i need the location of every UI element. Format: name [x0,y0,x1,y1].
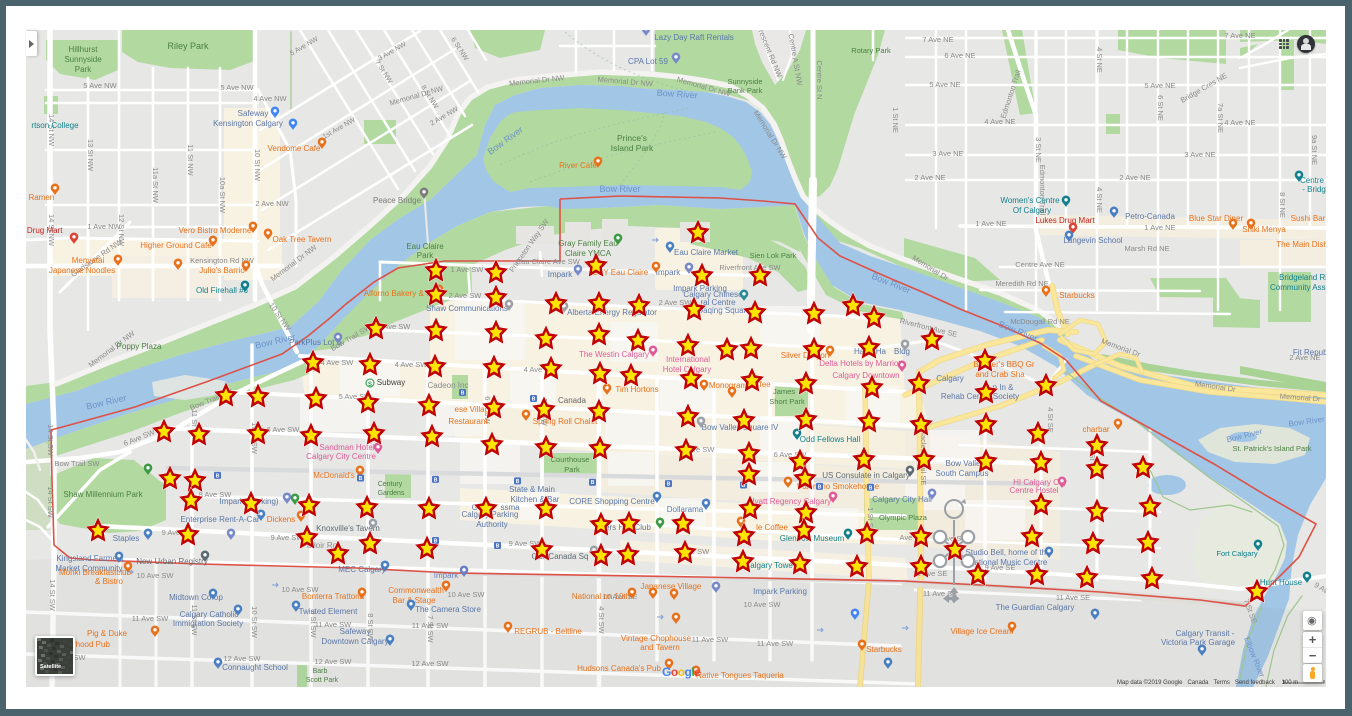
svg-text:3 Ave NE: 3 Ave NE [1184,150,1215,159]
svg-text:Immigration Society: Immigration Society [173,619,243,628]
svg-text:James: James [773,387,795,396]
svg-text:Bridgeland Riv: Bridgeland Riv [1279,273,1326,282]
svg-text:Connaught School: Connaught School [222,663,288,672]
svg-text:Olympic Plaza: Olympic Plaza [879,513,928,522]
svg-text:Peace Bridge: Peace Bridge [373,196,422,205]
svg-text:Gardens: Gardens [378,490,405,497]
svg-text:11 Ave SW: 11 Ave SW [692,635,729,644]
svg-text:4 Ave NE: 4 Ave NE [984,117,1015,126]
svg-text:Pig & Duke: Pig & Duke [87,629,128,638]
svg-text:Japanese Noodles: Japanese Noodles [49,266,115,275]
svg-text:Subway: Subway [377,378,405,387]
svg-text:Daqing Square: Daqing Square [697,306,751,315]
svg-text:10 Ave SW: 10 Ave SW [137,571,175,580]
svg-text:13 St NW: 13 St NW [86,139,95,172]
svg-text:B: B [434,477,438,483]
svg-text:REGRUB - Beltline: REGRUB - Beltline [514,627,582,636]
svg-text:1 St NE: 1 St NE [891,107,900,133]
svg-text:Calgary City Centre: Calgary City Centre [306,452,376,461]
svg-text:7 Ave NE: 7 Ave NE [922,35,953,44]
svg-text:Meredith Rd NE: Meredith Rd NE [995,279,1048,288]
svg-text:12 Ave SW: 12 Ave SW [412,659,450,668]
svg-text:Women's Centre: Women's Centre [1000,196,1060,205]
svg-text:4 Ave NW: 4 Ave NW [253,94,287,103]
svg-text:4 St SW: 4 St SW [597,606,606,634]
svg-text:5 Ave NW: 5 Ave NW [220,83,254,92]
svg-text:Vintage Chophouse: Vintage Chophouse [621,634,692,643]
svg-text:Rotary Park: Rotary Park [851,46,891,55]
svg-text:Park: Park [564,465,580,474]
svg-text:10 St SW: 10 St SW [250,606,259,639]
svg-text:Downtown Calgary: Downtown Calgary [321,637,388,646]
svg-text:Kensington Calgary: Kensington Calgary [213,119,283,128]
svg-text:Spring Roll Chalet: Spring Roll Chalet [533,417,598,426]
svg-text:Glenbow Museum: Glenbow Museum [780,534,845,543]
svg-text:Village Ice Cream: Village Ice Cream [951,627,1014,636]
svg-text:B: B [359,476,363,482]
svg-text:charbar: charbar [1082,425,1109,434]
svg-text:Calgary Downtown: Calgary Downtown [832,371,899,380]
svg-text:Marsh Rd NE: Marsh Rd NE [1124,244,1169,253]
svg-text:Short Park: Short Park [769,397,805,406]
svg-text:Odd Fellows Hall: Odd Fellows Hall [800,435,861,444]
svg-text:2 Ave NW: 2 Ave NW [255,199,289,208]
svg-text:Barb: Barb [313,668,328,675]
svg-text:Of Calgary: Of Calgary [1013,206,1051,215]
svg-text:CPA Lot 59: CPA Lot 59 [628,57,668,66]
svg-text:Impark: Impark [434,571,459,580]
svg-text:Vero Bistro Moderne: Vero Bistro Moderne [179,226,252,235]
svg-text:St. Patrick's Island Park: St. Patrick's Island Park [1233,444,1312,453]
svg-text:McDonald's: McDonald's [313,471,355,480]
svg-text:B: B [461,391,465,397]
svg-text:12 Ave SW: 12 Ave SW [315,657,353,666]
svg-text:ers Drug Mart: ers Drug Mart [26,226,63,235]
svg-text:The Guardian Calgary: The Guardian Calgary [996,603,1075,612]
svg-text:State & Main: State & Main [509,485,555,494]
svg-text:4 Ave SW: 4 Ave SW [321,358,355,367]
svg-text:Bank Park: Bank Park [728,86,763,95]
svg-text:11a St NW: 11a St NW [151,167,160,204]
svg-text:B: B [496,544,500,550]
svg-text:National on 10th: National on 10th [572,592,630,601]
svg-text:2 Ave NE: 2 Ave NE [914,173,945,182]
svg-text:8 St NE: 8 St NE [1278,192,1287,218]
svg-text:Safeway: Safeway [238,109,269,118]
svg-text:4 Ave SW: 4 Ave SW [395,360,429,369]
svg-text:10 Ave SW: 10 Ave SW [448,590,486,599]
svg-text:Riverfront Ave SW: Riverfront Ave SW [719,263,781,272]
svg-text:Hotel Calgary: Hotel Calgary [663,365,711,374]
svg-text:e Ramen: e Ramen [26,193,54,202]
svg-text:River Cafe: River Cafe [559,161,597,170]
svg-text:B: B [667,482,671,488]
svg-text:Canada: Canada [558,396,587,405]
svg-text:Impark: Impark [548,270,573,279]
svg-text:7a St NE: 7a St NE [1216,103,1225,133]
svg-text:Park: Park [417,251,434,260]
svg-text:Authority: Authority [476,520,508,529]
svg-text:Island Park: Island Park [611,143,654,153]
svg-text:S: S [368,382,372,388]
svg-text:Shaw Communications: Shaw Communications [426,304,508,313]
svg-text:10 St NW: 10 St NW [253,149,262,182]
svg-text:Julio's Barrio: Julio's Barrio [199,266,245,275]
svg-text:11 Ave SE: 11 Ave SE [1056,593,1090,602]
svg-text:McDougall Rd NE: McDougall Rd NE [1010,317,1070,326]
svg-text:Prince's: Prince's [617,133,647,143]
svg-text:B: B [869,485,873,491]
svg-text:Impark Parking: Impark Parking [753,587,807,596]
svg-text:7 Ave NE: 7 Ave NE [1224,31,1255,40]
svg-text:- Bridg: - Bridg [1302,185,1326,194]
svg-text:Oak Tree Tavern: Oak Tree Tavern [273,235,332,244]
svg-text:B: B [532,397,536,403]
svg-text:Victoria Park Garage: Victoria Park Garage [1161,638,1236,647]
svg-text:Lukes Drug Mart: Lukes Drug Mart [1035,216,1095,225]
svg-text:Sushi Bar: Sushi Bar [1291,214,1326,223]
svg-text:Delta Hotels by Marriott: Delta Hotels by Marriott [819,359,903,368]
svg-text:Bow River: Bow River [599,184,640,194]
svg-text:Twisted Element: Twisted Element [299,607,358,616]
svg-text:The Camera Store: The Camera Store [415,605,481,614]
svg-text:6 Ave NE: 6 Ave NE [944,51,975,60]
svg-text:5 Ave NW: 5 Ave NW [83,81,117,90]
svg-text:Impark: Impark [656,268,681,277]
svg-text:Old Firehall #6: Old Firehall #6 [196,286,249,295]
svg-text:and Tavern: and Tavern [640,643,679,652]
svg-text:B: B [216,473,220,479]
svg-text:Calgary: Calgary [936,374,964,383]
svg-text:Dickens: Dickens [267,515,295,524]
svg-text:Map data ©2019 Google Canada: Map data ©2019 Google Canada Terms Send … [1117,679,1298,686]
svg-text:Commonwealth: Commonwealth [388,586,444,595]
svg-text:Gray Family Eau: Gray Family Eau [558,239,618,248]
svg-text:Century: Century [378,481,403,488]
svg-text:Centre: Centre [1300,176,1325,185]
svg-text:rtson College: rtson College [31,121,79,130]
svg-text:11 St NW: 11 St NW [186,144,195,176]
svg-text:Safeway: Safeway [340,627,371,636]
svg-text:Vendome Cafe: Vendome Cafe [268,144,321,153]
svg-text:7 St SW: 7 St SW [426,615,435,643]
svg-text:The Main Dish: The Main Dish [1276,240,1326,249]
svg-text:4 Ave NE: 4 Ave NE [1224,118,1255,127]
svg-text:The Westin Calgary: The Westin Calgary [579,350,649,359]
svg-text:le Coffee: le Coffee [756,523,788,532]
svg-text:CORE Shopping Centre: CORE Shopping Centre [569,497,655,506]
svg-text:11 Ave SW: 11 Ave SW [132,614,169,623]
svg-text:12 Ave SW: 12 Ave SW [224,654,262,663]
svg-text:Staples: Staples [113,534,140,543]
svg-text:6 St NE: 6 St NE [1156,95,1165,121]
svg-text:Hunt House: Hunt House [1260,578,1303,587]
svg-text:Native Tongues Taqueria: Native Tongues Taqueria [696,671,784,680]
svg-text:Starbucks: Starbucks [866,645,902,654]
svg-text:US Consulate in Calgary: US Consulate in Calgary [822,471,910,480]
svg-text:Sien Lok Park: Sien Lok Park [750,251,797,260]
svg-text:1 Ave SW: 1 Ave SW [451,265,485,274]
svg-text:2 Ave NE: 2 Ave NE [1119,173,1150,182]
svg-text:11 Ave SW: 11 Ave SW [757,639,794,648]
svg-text:14 St NW: 14 St NW [47,114,56,147]
svg-text:3 St NE: 3 St NE [1034,137,1043,163]
svg-text:Dollarama: Dollarama [667,505,704,514]
svg-text:2 Ave SW: 2 Ave SW [449,291,483,300]
svg-text:B: B [818,484,822,490]
svg-text:1 Ave NW: 1 Ave NW [87,222,121,231]
svg-text:Centre St N: Centre St N [815,60,824,99]
svg-text:Courthouse: Courthouse [551,455,590,464]
svg-text:3 Ave NE: 3 Ave NE [932,149,963,158]
svg-text:1 Ave NE: 1 Ave NE [1144,223,1175,232]
svg-text:5 Ave NE: 5 Ave NE [1144,81,1175,90]
svg-text:Petro-Canada: Petro-Canada [1125,212,1175,221]
svg-text:Park: Park [75,65,92,74]
svg-text:Eau Claire: Eau Claire [406,242,444,251]
svg-text:14 St SW: 14 St SW [46,424,55,457]
svg-text:Monki Breakfastclub: Monki Breakfastclub [59,568,132,577]
svg-text:& Bistro: & Bistro [95,577,124,586]
svg-text:Eau Claire Ave SW: Eau Claire Ave SW [516,257,581,266]
svg-text:Hillhurst: Hillhurst [69,45,99,54]
svg-text:Hudsons Canada's Pub: Hudsons Canada's Pub [577,664,661,673]
svg-text:B: B [516,479,520,485]
svg-text:Sunnyside: Sunnyside [64,55,102,64]
svg-text:10 Ave SW: 10 Ave SW [744,600,782,609]
svg-text:Calgary Tower: Calgary Tower [745,561,796,570]
svg-text:Studio Bell, home of the: Studio Bell, home of the [966,548,1051,557]
svg-text:Riley Park: Riley Park [167,41,209,51]
svg-text:ParkPlus Lot 6: ParkPlus Lot 6 [289,338,342,347]
svg-text:Scott Park: Scott Park [306,677,339,684]
svg-text:Fit Republi: Fit Republi [1293,348,1326,357]
svg-text:Fort Calgary: Fort Calgary [1216,549,1258,558]
svg-text:International: International [666,355,710,364]
svg-text:Centre Hostel: Centre Hostel [1010,486,1059,495]
svg-text:Sunnyside: Sunnyside [727,77,762,86]
svg-text:6 Ave SW: 6 Ave SW [267,425,301,434]
svg-text:4 St NE: 4 St NE [1095,187,1104,213]
svg-text:Restaurant: Restaurant [448,417,488,426]
svg-text:Higher Ground Cafe: Higher Ground Cafe [140,241,212,250]
svg-text:1 Ave NE: 1 Ave NE [975,219,1006,228]
svg-text:Kingsland Farmers: Kingsland Farmers [56,554,123,563]
svg-text:9a St NE: 9a St NE [1310,135,1319,165]
svg-text:New Urban Registry: New Urban Registry [136,557,208,566]
svg-text:Calgary Catholic: Calgary Catholic [180,610,239,619]
svg-text:Shaw Millennium Park: Shaw Millennium Park [63,490,143,499]
svg-text:Starbucks: Starbucks [1059,291,1095,300]
svg-text:Calgary City Hall: Calgary City Hall [872,495,932,504]
svg-text:Bonterra Trattoria: Bonterra Trattoria [302,592,365,601]
svg-text:B: B [591,480,595,486]
svg-text:Cadeon Inc: Cadeon Inc [428,381,469,390]
svg-text:Community Assoc: Community Assoc [1270,283,1326,292]
svg-text:Lazy Day Raft Rentals: Lazy Day Raft Rentals [654,33,734,42]
svg-text:14 St SW: 14 St SW [46,486,55,519]
svg-text:Enterprise Rent-A-Car: Enterprise Rent-A-Car [180,515,259,524]
svg-text:Eau Claire Market: Eau Claire Market [674,248,739,257]
svg-text:MEC Calgary: MEC Calgary [338,565,386,574]
svg-text:Bldg: Bldg [894,347,910,356]
svg-text:Bow Trail SW: Bow Trail SW [54,459,100,468]
svg-text:Calgary Transit -: Calgary Transit - [1176,629,1235,638]
svg-text:14 St SW: 14 St SW [48,579,57,612]
svg-text:5 Ave NE: 5 Ave NE [929,80,960,89]
svg-text:and Crab Sha: and Crab Sha [975,370,1025,379]
svg-text:Menyatai: Menyatai [72,256,105,265]
svg-text:4 St NE: 4 St NE [1095,47,1104,73]
svg-text:Centre Ave NE: Centre Ave NE [1015,260,1064,269]
svg-text:10a St NW: 10a St NW [218,177,227,214]
